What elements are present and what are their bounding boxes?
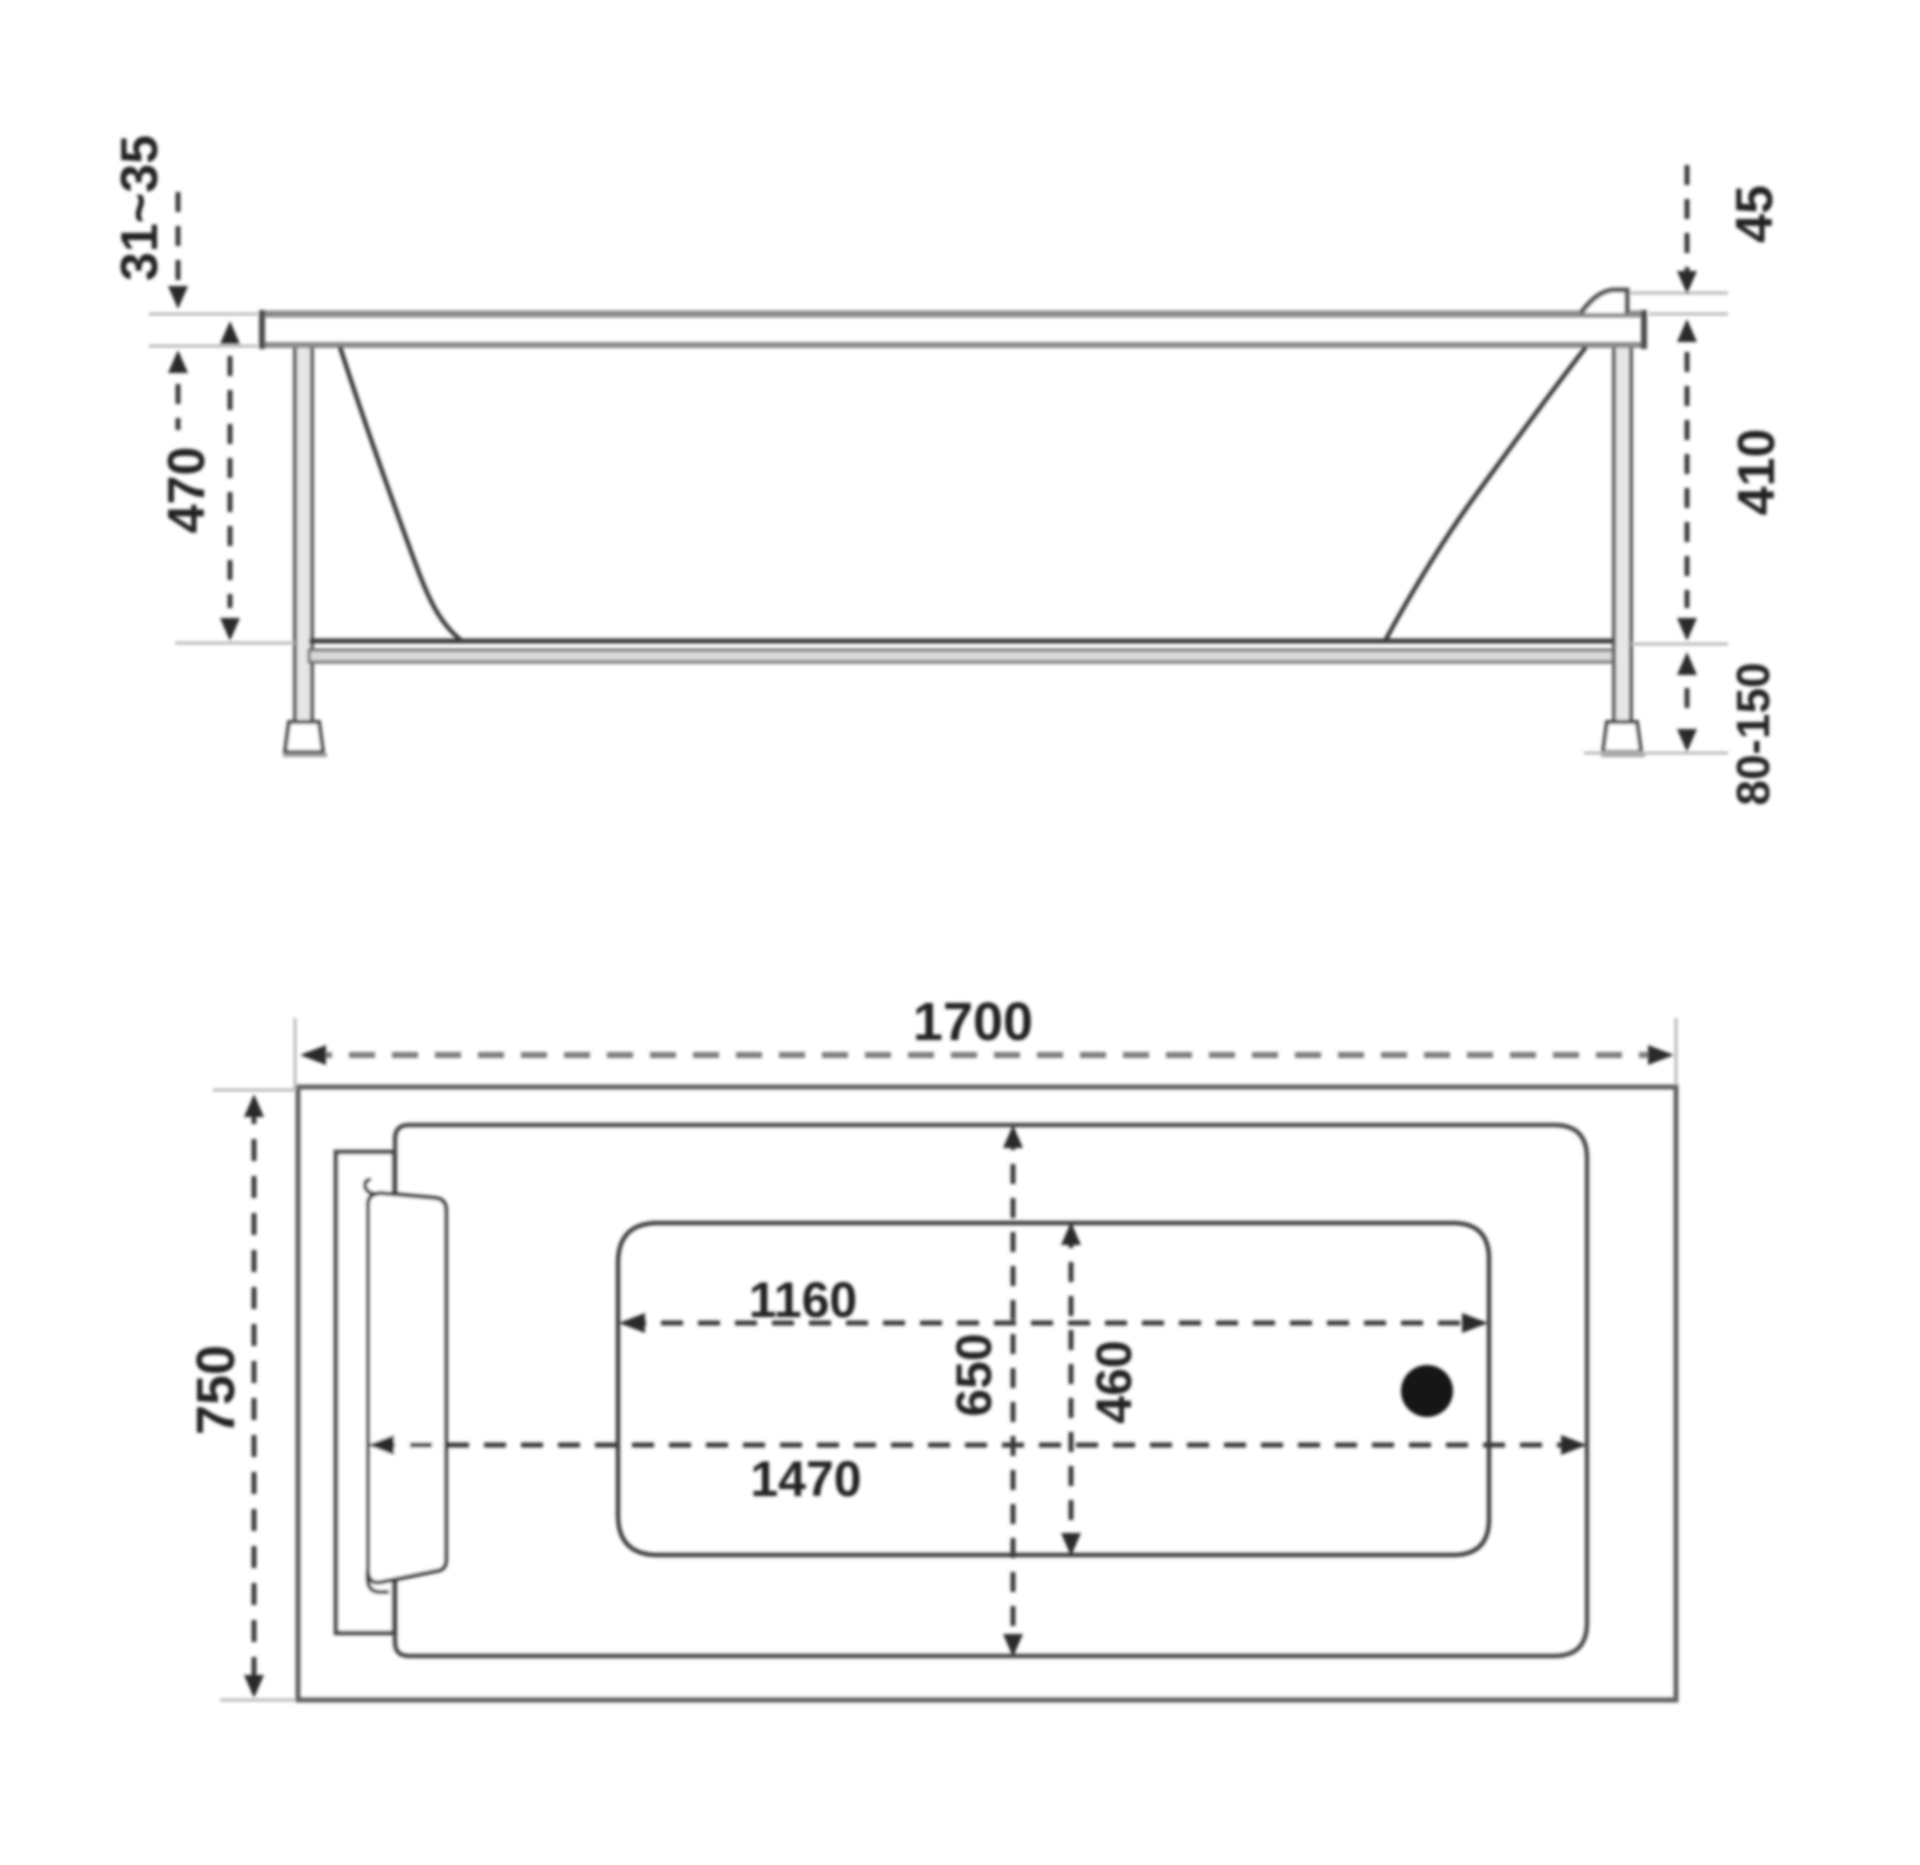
svg-text:1470: 1470 [750,1451,861,1507]
svg-text:650: 650 [946,1333,1002,1416]
svg-text:1160: 1160 [749,1272,857,1328]
svg-text:470: 470 [158,447,216,534]
svg-text:80-150: 80-150 [1727,662,1779,805]
svg-text:750: 750 [186,1345,246,1435]
svg-text:31~35: 31~35 [111,135,169,281]
svg-text:1700: 1700 [913,992,1033,1052]
svg-text:45: 45 [1726,185,1784,243]
svg-text:460: 460 [1086,1340,1142,1423]
svg-text:410: 410 [1728,429,1786,516]
